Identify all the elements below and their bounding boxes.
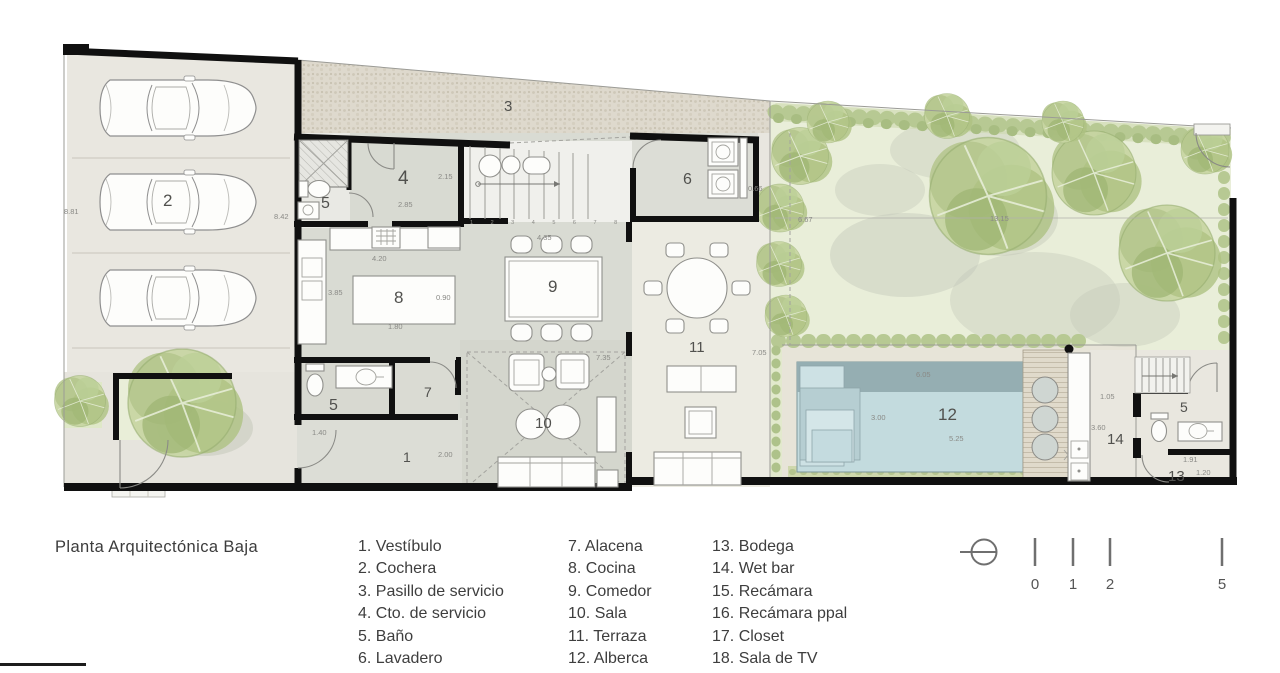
dim-garage-left: 8.81 (64, 207, 79, 216)
dim-bodega-h: 1.20 (1196, 468, 1211, 477)
dim-jardin-l: 13.15 (990, 214, 1009, 223)
room-label-bano-garage: 5 (321, 195, 330, 212)
room-label-cto-servicio: 4 (398, 168, 409, 189)
legend-column-1: 1. Vestíbulo 2. Cochera 3. Pasillo de se… (358, 536, 504, 670)
legend-item-13: 13. Bodega (712, 536, 847, 558)
legend-item-10: 10. Sala (568, 603, 652, 625)
room-label-bodega: 13 (1168, 468, 1185, 485)
dim-comedor-w: 4.35 (537, 233, 552, 242)
dim-wetbar-w: 1.05 (1100, 392, 1115, 401)
room-label-bano-main: 5 (329, 397, 338, 414)
legend-item-14: 14. Wet bar (712, 558, 847, 580)
dim-bodega-w: 1.91 (1183, 455, 1198, 464)
room-label-vestibulo: 1 (403, 449, 411, 465)
dim-cto-h: 2.85 (398, 200, 413, 209)
legend-item-5: 5. Baño (358, 626, 504, 648)
garage-cars (100, 76, 256, 330)
wetbar-fixtures (1064, 353, 1090, 481)
dim-cocina-h: 3.85 (328, 288, 343, 297)
dim-sala-h: 7.35 (596, 353, 611, 362)
pool (797, 345, 1074, 482)
scale-label-1: 1 (1069, 576, 1077, 593)
dim-pool-l: 5.25 (949, 434, 964, 443)
dim-cocina-w: 4.20 (372, 254, 387, 263)
room-label-pasillo: 3 (504, 98, 512, 115)
room-label-terraza: 11 (689, 339, 705, 356)
plan-title: Planta Arquitectónica Baja (55, 538, 258, 557)
page-corner-line (0, 663, 86, 666)
legend-item-16: 16. Recámara ppal (712, 603, 847, 625)
legend-item-1: 1. Vestíbulo (358, 536, 504, 558)
service-equipment (479, 155, 550, 177)
legend-item-18: 18. Sala de TV (712, 648, 847, 670)
legend-item-11: 11. Terraza (568, 626, 652, 648)
dim-pool-h: 3.00 (871, 413, 886, 422)
legend-item-3: 3. Pasillo de servicio (358, 581, 504, 603)
legend-item-12: 12. Alberca (568, 648, 652, 670)
legend-item-15: 15. Recámara (712, 581, 847, 603)
room-label-cocina: 8 (394, 288, 403, 307)
dim-cto-w: 2.15 (438, 172, 453, 181)
scale-label-0: 0 (1031, 576, 1039, 593)
dim-terraza-h: 7.05 (752, 348, 767, 357)
room-label-alberca: 12 (938, 405, 957, 424)
dim-wetbar-h: 3.60 (1091, 423, 1106, 432)
legend-item-17: 17. Closet (712, 626, 847, 648)
room-label-sala: 10 (535, 415, 552, 432)
dim-vest-w: 1.40 (312, 428, 327, 437)
floor-plan-drawing: 2 5 4 3 6 8 9 11 7 5 1 10 12 14 5 13 8.8… (0, 0, 1280, 510)
legend-column-3: 13. Bodega 14. Wet bar 15. Recámara 16. … (712, 536, 847, 670)
dim-jardin-w: 6.67 (798, 215, 813, 224)
legend-item-7: 7. Alacena (568, 536, 652, 558)
legend-item-8: 8. Cocina (568, 558, 652, 580)
dim-garage-right: 8.42 (274, 212, 289, 221)
room-label-lavadero: 6 (683, 171, 692, 188)
scale-ticks (1035, 538, 1222, 566)
room-label-cochera: 2 (163, 191, 172, 210)
dim-isla-w: 0.90 (436, 293, 451, 302)
legend-column-2: 7. Alacena 8. Cocina 9. Comedor 10. Sala… (568, 536, 652, 670)
page: 2 5 4 3 6 8 9 11 7 5 1 10 12 14 5 13 8.8… (0, 0, 1280, 673)
stair-step-numbers: 1 2 3 4 5 6 7 8 (470, 220, 625, 226)
room-label-comedor: 9 (548, 277, 557, 296)
room-label-bano-right: 5 (1180, 399, 1188, 415)
scale-label-5: 5 (1218, 576, 1226, 593)
dim-pool-w: 6.05 (916, 370, 931, 379)
legend-item-9: 9. Comedor (568, 581, 652, 603)
room-label-alacena: 7 (424, 384, 432, 400)
north-symbol (958, 537, 1006, 569)
dim-isla-l: 1.80 (388, 322, 403, 331)
legend-item-4: 4. Cto. de servicio (358, 603, 504, 625)
legend-item-6: 6. Lavadero (358, 648, 504, 670)
legend-item-2: 2. Cochera (358, 558, 504, 580)
scale-label-2: 2 (1106, 576, 1114, 593)
right-staircase (1135, 357, 1190, 393)
scale-bar: 0 1 2 5 (1018, 534, 1248, 596)
dim-vest-h: 2.00 (438, 450, 453, 459)
dim-lavadero: 0.66 (748, 184, 763, 193)
room-label-wetbar: 14 (1107, 431, 1124, 448)
